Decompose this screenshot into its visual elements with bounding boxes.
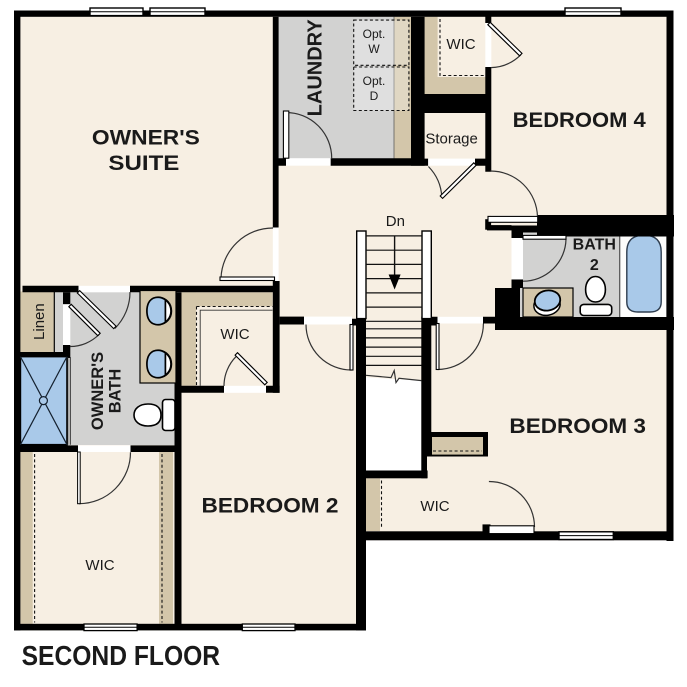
svg-text:SECOND FLOOR: SECOND FLOOR — [22, 640, 221, 671]
svg-text:WIC: WIC — [446, 36, 475, 53]
svg-text:2: 2 — [590, 257, 599, 274]
svg-text:BATH: BATH — [573, 237, 616, 254]
svg-text:BATH: BATH — [106, 369, 124, 414]
svg-text:BEDROOM 3: BEDROOM 3 — [509, 415, 646, 438]
svg-text:WIC: WIC — [220, 326, 249, 343]
svg-text:SUITE: SUITE — [108, 152, 179, 175]
svg-text:BEDROOM 4: BEDROOM 4 — [513, 109, 646, 132]
svg-text:Opt.: Opt. — [363, 74, 386, 88]
svg-text:Opt.: Opt. — [363, 27, 386, 41]
svg-text:LAUNDRY: LAUNDRY — [305, 19, 327, 117]
svg-text:WIC: WIC — [420, 498, 449, 515]
svg-text:OWNER'S: OWNER'S — [92, 127, 200, 150]
svg-text:D: D — [370, 89, 379, 103]
svg-text:Linen: Linen — [31, 303, 48, 340]
svg-text:OWNER'S: OWNER'S — [89, 352, 107, 430]
svg-text:BEDROOM 2: BEDROOM 2 — [202, 495, 339, 518]
svg-text:Dn: Dn — [386, 213, 405, 230]
svg-text:Storage: Storage — [425, 130, 478, 147]
svg-text:W: W — [368, 42, 380, 56]
svg-text:WIC: WIC — [85, 557, 114, 574]
